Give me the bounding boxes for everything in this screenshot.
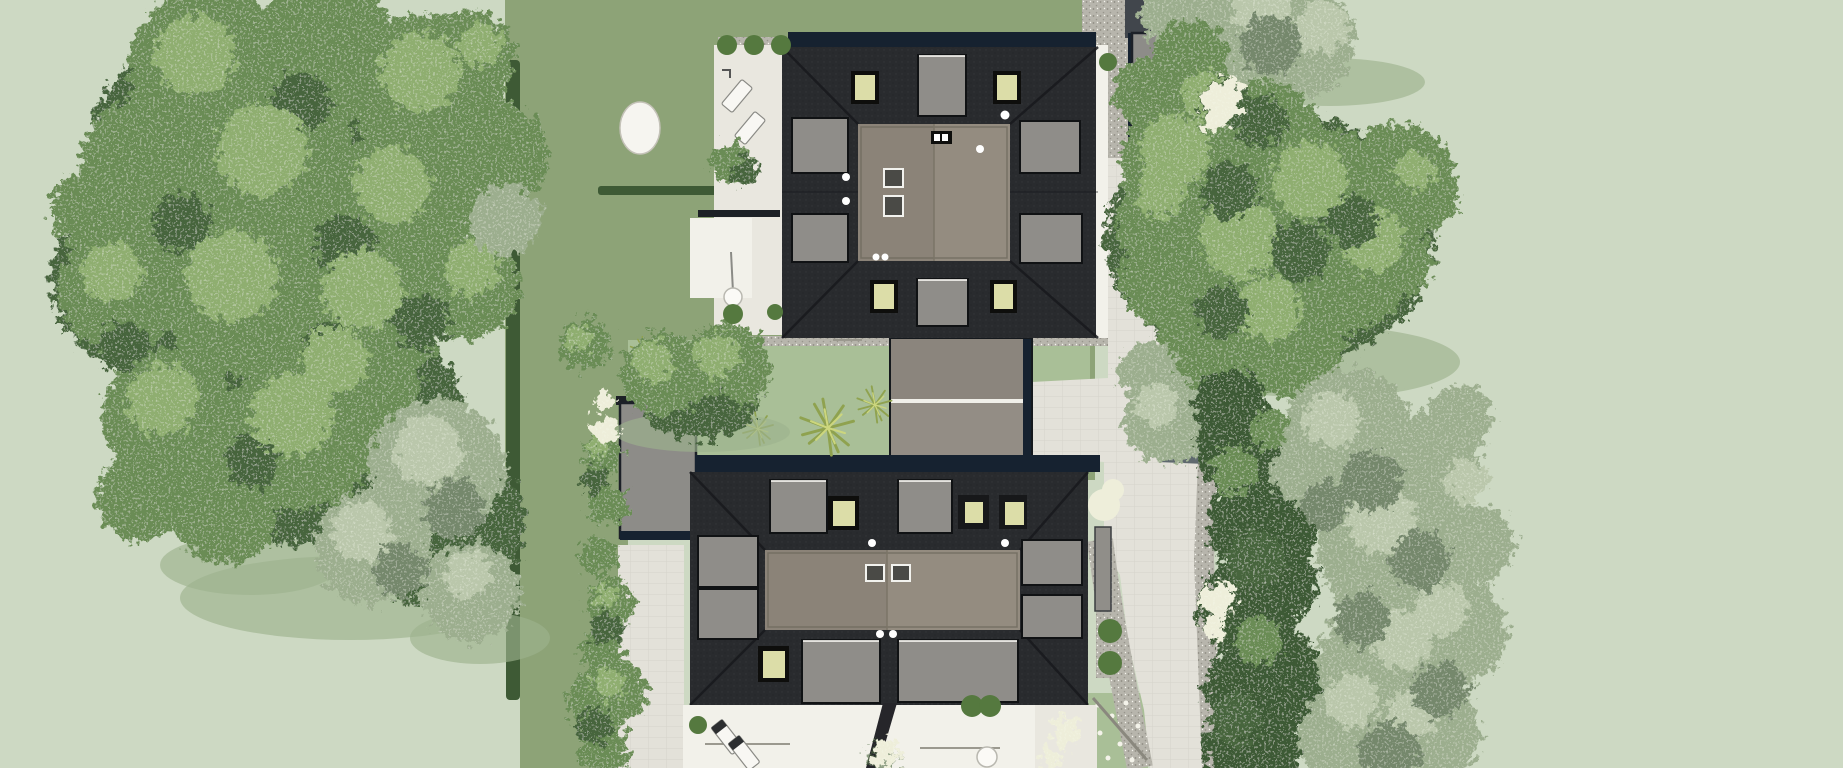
north-house [782, 32, 1108, 338]
south-house-north-shadow [695, 455, 1100, 472]
parasol-table-garden [620, 102, 660, 154]
site-plan-canvas [0, 0, 1843, 768]
site-plan-rendering [0, 0, 1843, 768]
tree-cluster-southeast [1194, 368, 1514, 768]
parasol-table-terrace [977, 747, 997, 767]
hedge-row-north-garden [598, 186, 718, 195]
garage-central [890, 338, 1032, 462]
terrace-south [683, 695, 1147, 768]
south-house [690, 472, 1088, 705]
